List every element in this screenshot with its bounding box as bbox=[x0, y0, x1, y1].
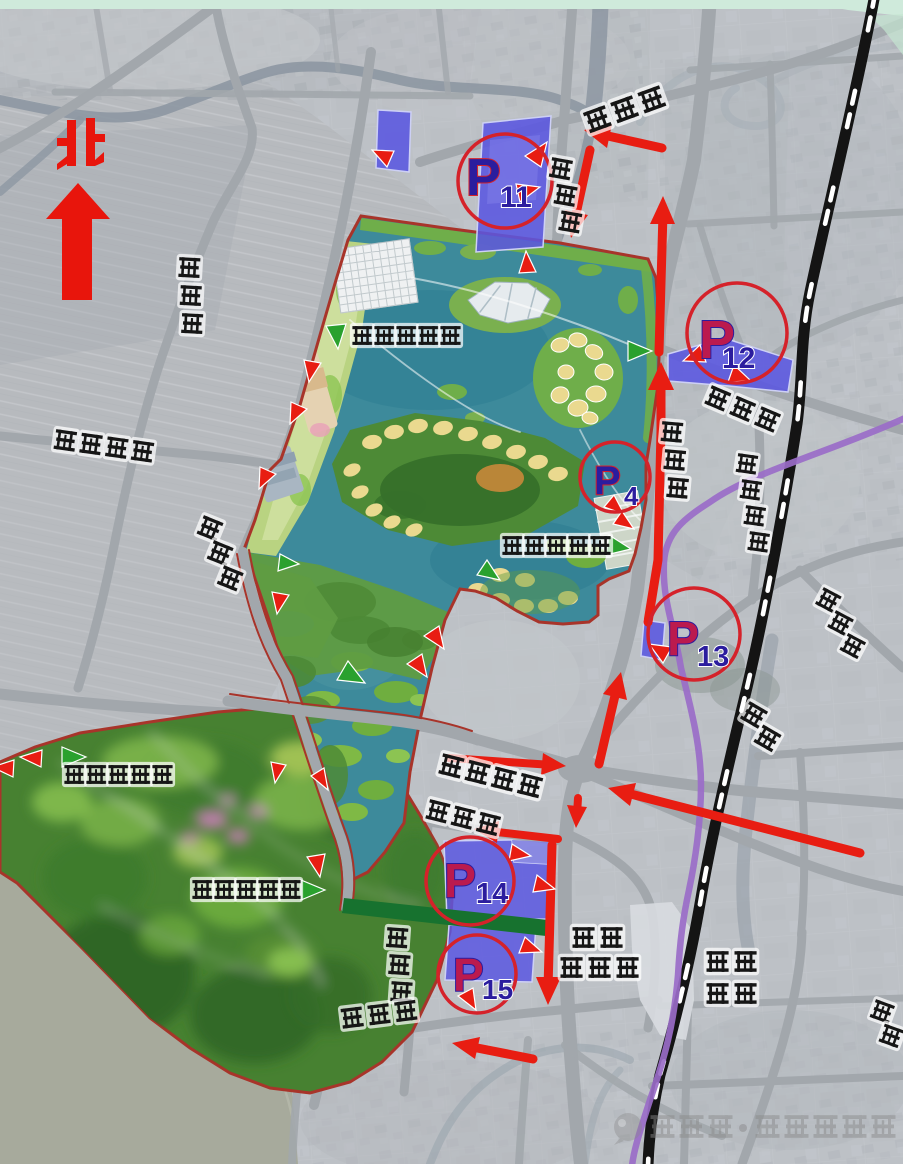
svg-text:15: 15 bbox=[482, 974, 513, 1005]
svg-text:P: P bbox=[466, 149, 501, 207]
svg-text:13: 13 bbox=[697, 641, 729, 673]
svg-text:11: 11 bbox=[500, 181, 532, 214]
svg-text:P: P bbox=[444, 855, 476, 908]
svg-text:P: P bbox=[667, 613, 699, 666]
svg-text:P: P bbox=[594, 459, 621, 503]
svg-text:12: 12 bbox=[722, 342, 755, 375]
svg-text:14: 14 bbox=[476, 878, 508, 910]
svg-text:4: 4 bbox=[624, 481, 639, 511]
svg-text:P: P bbox=[453, 949, 484, 1001]
